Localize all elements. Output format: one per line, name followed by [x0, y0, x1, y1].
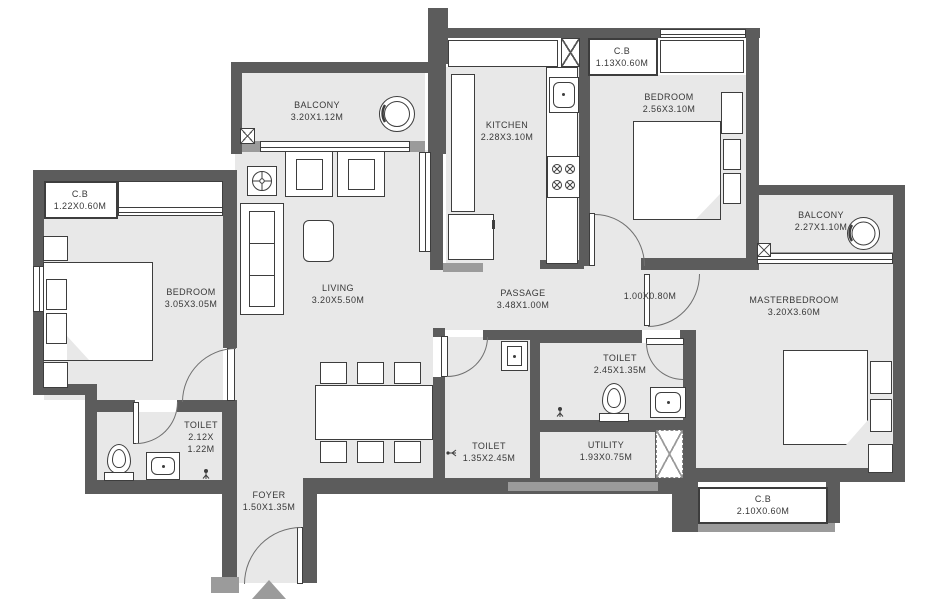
- dining-chair: [394, 362, 421, 384]
- bedside-table: [723, 173, 741, 204]
- fridge-handle: [492, 220, 495, 229]
- wall-segment: [746, 28, 759, 270]
- basin-drain: [667, 401, 670, 404]
- sofa-seat: [249, 211, 275, 307]
- wall-segment: [433, 377, 445, 490]
- coffee-table: [303, 220, 334, 262]
- wall-segment: [303, 478, 443, 494]
- wall-segment: [222, 400, 237, 583]
- armchair-seat: [296, 159, 323, 190]
- wall-segment: [223, 170, 237, 348]
- duct-icon: [240, 128, 255, 144]
- wall-segment: [530, 343, 540, 490]
- armchair-seat: [348, 159, 375, 190]
- room-label-kitchen: KITCHEN2.28X3.10M: [481, 119, 534, 143]
- room-label-balcony-right: BALCONY2.27X1.10M: [795, 209, 848, 233]
- wall-segment: [826, 482, 840, 523]
- dining-chair: [394, 441, 421, 463]
- wall-segment: [483, 330, 530, 340]
- planter-icon: [377, 94, 417, 134]
- window: [419, 152, 431, 252]
- basin-drain: [162, 465, 165, 468]
- sofa-divider: [249, 243, 275, 244]
- window: [757, 253, 893, 264]
- window: [260, 141, 410, 152]
- wall-segment: [428, 8, 448, 64]
- room-label-utility: UTILITY1.93X0.75M: [580, 439, 633, 463]
- wall-segment: [33, 170, 235, 181]
- room-label-toilet-bottom: TOILET1.35X2.45M: [463, 440, 516, 464]
- wall-segment: [893, 185, 905, 480]
- ceiling-fan-icon: [247, 166, 277, 196]
- dining-chair: [320, 441, 347, 463]
- room-label-foyer: FOYER1.50X1.35M: [243, 489, 296, 513]
- pillow: [46, 313, 67, 344]
- stove-icon: [547, 156, 580, 198]
- room-label-toilet-master: TOILET2.45X1.35M: [594, 352, 647, 376]
- wall-segment: [755, 185, 905, 195]
- room-label-bedroom-top: BEDROOM2.56X3.10M: [643, 91, 696, 115]
- wc-icon: [602, 383, 626, 414]
- bedside-table: [870, 361, 892, 394]
- wall-sill: [211, 577, 239, 593]
- kitchen-counter-top: [448, 40, 558, 67]
- room-label-lobby: 1.00X0.80M: [624, 290, 677, 302]
- shower-icon: [446, 447, 458, 459]
- wall-segment: [641, 258, 746, 270]
- shower-icon: [554, 406, 566, 418]
- wall-segment: [231, 62, 437, 73]
- bedside-table: [723, 139, 741, 170]
- wc-cistern: [104, 472, 134, 481]
- room-label-passage: PASSAGE3.48X1.00M: [497, 287, 550, 311]
- sofa-divider: [249, 275, 275, 276]
- bedside-table: [721, 92, 743, 134]
- wardrobe: [868, 444, 893, 473]
- wall-segment: [97, 400, 135, 412]
- room-label-cb-top: C.B1.13X0.60M: [596, 45, 649, 69]
- room-label-masterbedroom: MASTERBEDROOM3.20X3.60M: [749, 294, 838, 318]
- wardrobe-bedroom-top: [660, 40, 744, 73]
- wall-segment: [85, 480, 237, 494]
- window: [118, 207, 223, 216]
- room-label-cb-left: C.B1.22X0.60M: [54, 188, 107, 212]
- dining-chair: [320, 362, 347, 384]
- wall-segment: [428, 62, 446, 154]
- room-label-bedroom-left: BEDROOM3.05X3.05M: [165, 286, 218, 310]
- wc-cistern: [599, 413, 629, 422]
- entrance-arrow-icon: [252, 580, 286, 599]
- washing-area-icon: [656, 430, 683, 478]
- duct-icon: [757, 243, 771, 257]
- bedside-table: [870, 399, 892, 432]
- room-label-toilet-left: TOILET2.12X1.22M: [184, 419, 218, 455]
- bed: [633, 121, 721, 220]
- bed: [783, 350, 868, 445]
- dining-chair: [357, 441, 384, 463]
- wall-sill: [443, 263, 483, 272]
- shaft-dot: [513, 355, 516, 358]
- pillow: [46, 279, 67, 310]
- room-label-living: LIVING3.20X5.50M: [312, 282, 365, 306]
- kitchen-counter-left: [451, 74, 475, 212]
- sink-drain: [562, 93, 565, 96]
- shower-icon: [200, 468, 212, 480]
- wall-segment: [430, 154, 443, 270]
- wall-sill: [698, 523, 835, 532]
- bedside-table: [43, 236, 68, 261]
- wc-icon: [107, 444, 131, 474]
- wardrobe-bedroom-left: [118, 181, 223, 208]
- room-label-cb-bottom: C.B2.10X0.60M: [737, 493, 790, 517]
- wall-sill: [508, 482, 658, 491]
- planter-icon: [845, 215, 882, 252]
- wall-segment: [303, 488, 317, 583]
- bedside-table: [43, 362, 68, 388]
- bed: [43, 262, 153, 361]
- dining-chair: [357, 362, 384, 384]
- window: [660, 29, 746, 38]
- dining-table: [315, 385, 433, 440]
- room-label-balcony-top: BALCONY3.20X1.12M: [291, 99, 344, 123]
- duct-icon: [561, 38, 580, 67]
- fridge: [448, 214, 494, 260]
- wall-segment: [530, 330, 642, 343]
- floor-plan: BALCONY3.20X1.12M KITCHEN2.28X3.10M C.B1…: [0, 0, 937, 612]
